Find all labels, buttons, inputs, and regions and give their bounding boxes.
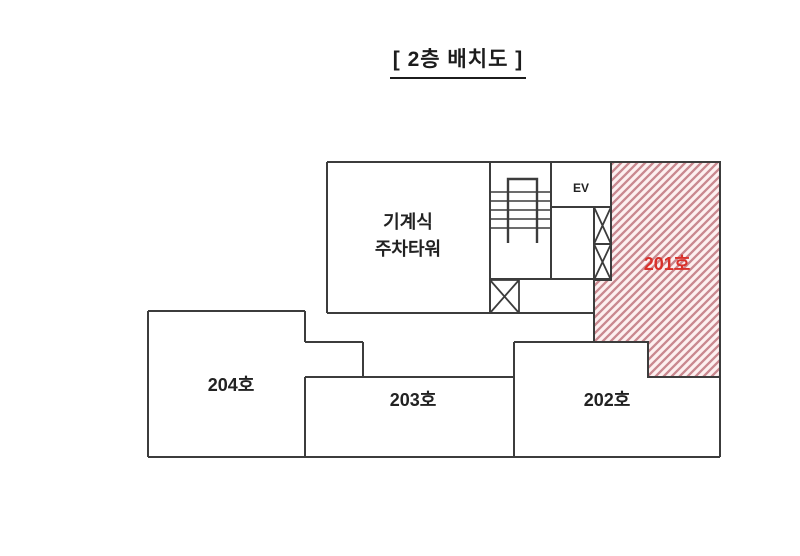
floor-plan-drawing: 기계식 주차타워 EV 201호 202호 203호 204호 bbox=[0, 0, 800, 556]
room-201-label: 201호 bbox=[644, 254, 691, 274]
parking-tower-label-line2: 주차타워 bbox=[375, 238, 441, 259]
room-202-label: 202호 bbox=[584, 390, 631, 410]
elevator-label: EV bbox=[573, 181, 589, 195]
floor-plan-page: [ 2층 배치도 ] 기계식 주차타워 EV 201호 202호 203호 20… bbox=[0, 0, 800, 556]
room-204-label: 204호 bbox=[208, 375, 255, 395]
stair-handrail bbox=[508, 179, 537, 243]
stair-treads bbox=[490, 192, 551, 228]
lower-x-box bbox=[490, 280, 519, 313]
room-203-label: 203호 bbox=[390, 390, 437, 410]
parking-tower-label-line1: 기계식 bbox=[383, 212, 433, 232]
